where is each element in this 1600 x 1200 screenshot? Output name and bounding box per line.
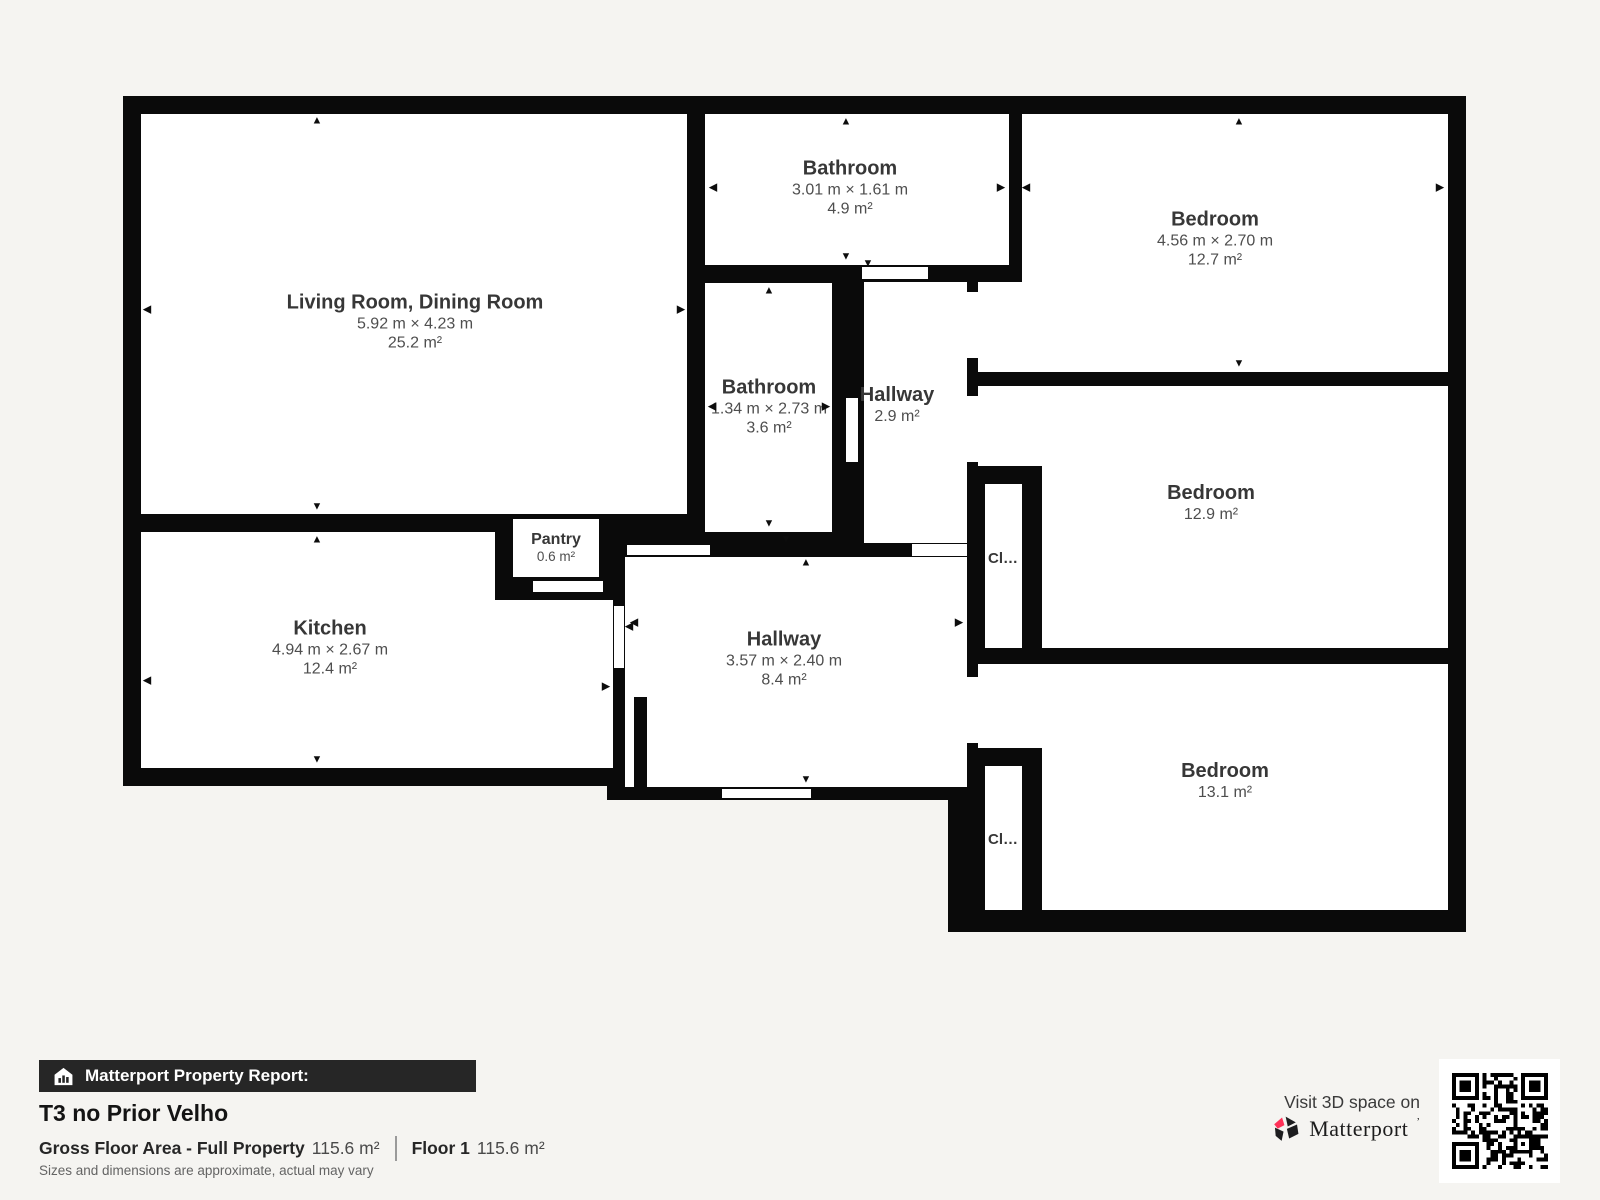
dimension-arrow-down: ▼ <box>312 755 323 766</box>
floor-plan: Living Room, Dining Room5.92 m × 4.23 m2… <box>0 0 1600 1200</box>
matterport-logo-icon <box>1271 1115 1301 1143</box>
dimension-arrow-down: ▼ <box>312 502 323 513</box>
disclaimer-text: Sizes and dimensions are approximate, ac… <box>39 1163 374 1178</box>
room-dims: 1.34 m × 2.73 m <box>711 400 827 419</box>
room-label-kitchen: Kitchen4.94 m × 2.67 m12.4 m² <box>272 618 388 679</box>
door-opening <box>846 398 858 462</box>
report-header-bar: Matterport Property Report: <box>39 1060 476 1092</box>
room-area: 8.4 m² <box>726 671 842 690</box>
room-label-closet-1: Cl… <box>988 551 1018 567</box>
metrics-divider <box>395 1136 397 1161</box>
door-opening <box>967 677 978 743</box>
door-opening <box>912 544 967 556</box>
visit-3d-text: Visit 3D space on <box>1284 1092 1420 1113</box>
door-opening <box>614 606 624 668</box>
dimension-arrow-right: ▶ <box>1436 183 1444 194</box>
dimension-arrow-right: ▶ <box>955 618 963 629</box>
floor-area-metrics: Gross Floor Area - Full Property 115.6 m… <box>39 1136 545 1161</box>
room-area: 13.1 m² <box>1181 783 1269 802</box>
gfa-label: Gross Floor Area - Full Property <box>39 1138 305 1159</box>
dimension-arrow-left: ◀ <box>630 618 638 629</box>
room-name: Bathroom <box>711 377 827 400</box>
room-name: Cl… <box>988 832 1018 848</box>
room-area: 12.9 m² <box>1167 505 1255 524</box>
room-name: Pantry <box>531 531 581 549</box>
room-label-hallway-small: Hallway2.9 m² <box>860 384 934 426</box>
dimension-arrow-down: ▼ <box>781 535 792 546</box>
dimension-arrow-left: ◀ <box>708 402 716 413</box>
property-title: T3 no Prior Velho <box>39 1100 228 1127</box>
qr-code <box>1452 1071 1548 1171</box>
room-name: Cl… <box>988 551 1018 567</box>
room-dims: 4.56 m × 2.70 m <box>1157 232 1273 251</box>
room-area: 4.9 m² <box>792 200 908 219</box>
report-bar-label: Matterport Property Report: <box>85 1066 309 1086</box>
qr-code-card <box>1439 1059 1560 1183</box>
floor-label: Floor 1 <box>412 1138 470 1159</box>
room-name: Bedroom <box>1167 482 1255 505</box>
house-chart-icon <box>53 1066 74 1087</box>
floor-value: 115.6 m² <box>477 1138 545 1159</box>
room-dims: 4.94 m × 2.67 m <box>272 641 388 660</box>
dimension-arrow-right: ▶ <box>997 183 1005 194</box>
dimension-arrow-right: ▶ <box>822 402 830 413</box>
matterport-floor-plan-report: { "colors": { "wall": "#0a0a0a", "backgr… <box>0 0 1600 1200</box>
room-name: Hallway <box>726 629 842 652</box>
dimension-arrow-up: ▲ <box>1234 117 1245 128</box>
dimension-arrow-up: ▲ <box>764 286 775 297</box>
room-dims: 3.01 m × 1.61 m <box>792 181 908 200</box>
room-area: 0.6 m² <box>531 549 581 565</box>
room-area: 25.2 m² <box>287 334 544 353</box>
door-opening <box>967 292 978 358</box>
room-area: 2.9 m² <box>860 407 934 426</box>
room-label-bedroom-middle: Bedroom12.9 m² <box>1167 482 1255 524</box>
trademark-mark: ’ <box>1416 1116 1420 1128</box>
door-opening <box>627 545 710 555</box>
dimension-arrow-right: ▶ <box>677 305 685 316</box>
room-label-hallway-main: Hallway3.57 m × 2.40 m8.4 m² <box>726 629 842 690</box>
room-label-bathroom-top: Bathroom3.01 m × 1.61 m4.9 m² <box>792 158 908 219</box>
room-area: 12.4 m² <box>272 660 388 679</box>
room-label-bedroom-top: Bedroom4.56 m × 2.70 m12.7 m² <box>1157 209 1273 270</box>
room-area: 12.7 m² <box>1157 251 1273 270</box>
dimension-arrow-down: ▼ <box>801 775 812 786</box>
dimension-arrow-left: ◀ <box>709 183 717 194</box>
matterport-brand: Matterport ’ <box>1271 1115 1420 1143</box>
dimension-arrow-left: ◀ <box>143 305 151 316</box>
door-opening <box>722 789 811 798</box>
room-name: Bedroom <box>1181 760 1269 783</box>
room-label-closet-2: Cl… <box>988 832 1018 848</box>
room-name: Hallway <box>860 384 934 407</box>
room-label-bathroom-middle: Bathroom1.34 m × 2.73 m3.6 m² <box>711 377 827 438</box>
dimension-arrow-down: ▼ <box>1234 359 1245 370</box>
dimension-arrow-down: ▼ <box>764 519 775 530</box>
dimension-arrow-right: ▶ <box>602 682 610 693</box>
room-name: Bathroom <box>792 158 908 181</box>
dimension-arrow-up: ▲ <box>801 558 812 569</box>
room-name: Bedroom <box>1157 209 1273 232</box>
room-label-bedroom-bottom: Bedroom13.1 m² <box>1181 760 1269 802</box>
room-name: Kitchen <box>272 618 388 641</box>
room-dims: 5.92 m × 4.23 m <box>287 315 544 334</box>
matterport-wordmark: Matterport <box>1309 1116 1408 1142</box>
wall <box>634 697 647 787</box>
dimension-arrow-up: ▲ <box>312 535 323 546</box>
room-area: 3.6 m² <box>711 419 827 438</box>
door-opening <box>967 396 978 462</box>
room-name: Living Room, Dining Room <box>287 292 544 315</box>
dimension-arrow-left: ◀ <box>143 676 151 687</box>
dimension-arrow-down: ▼ <box>863 259 874 270</box>
door-opening <box>533 581 603 592</box>
gfa-value: 115.6 m² <box>312 1138 380 1159</box>
dimension-arrow-left: ◀ <box>1022 183 1030 194</box>
room-dims: 3.57 m × 2.40 m <box>726 652 842 671</box>
dimension-arrow-up: ▲ <box>841 117 852 128</box>
room-area <box>978 282 1022 372</box>
dimension-arrow-down: ▼ <box>841 252 852 263</box>
dimension-arrow-up: ▲ <box>312 116 323 127</box>
room-label-pantry: Pantry0.6 m² <box>531 531 581 565</box>
room-label-living-room: Living Room, Dining Room5.92 m × 4.23 m2… <box>287 292 544 353</box>
